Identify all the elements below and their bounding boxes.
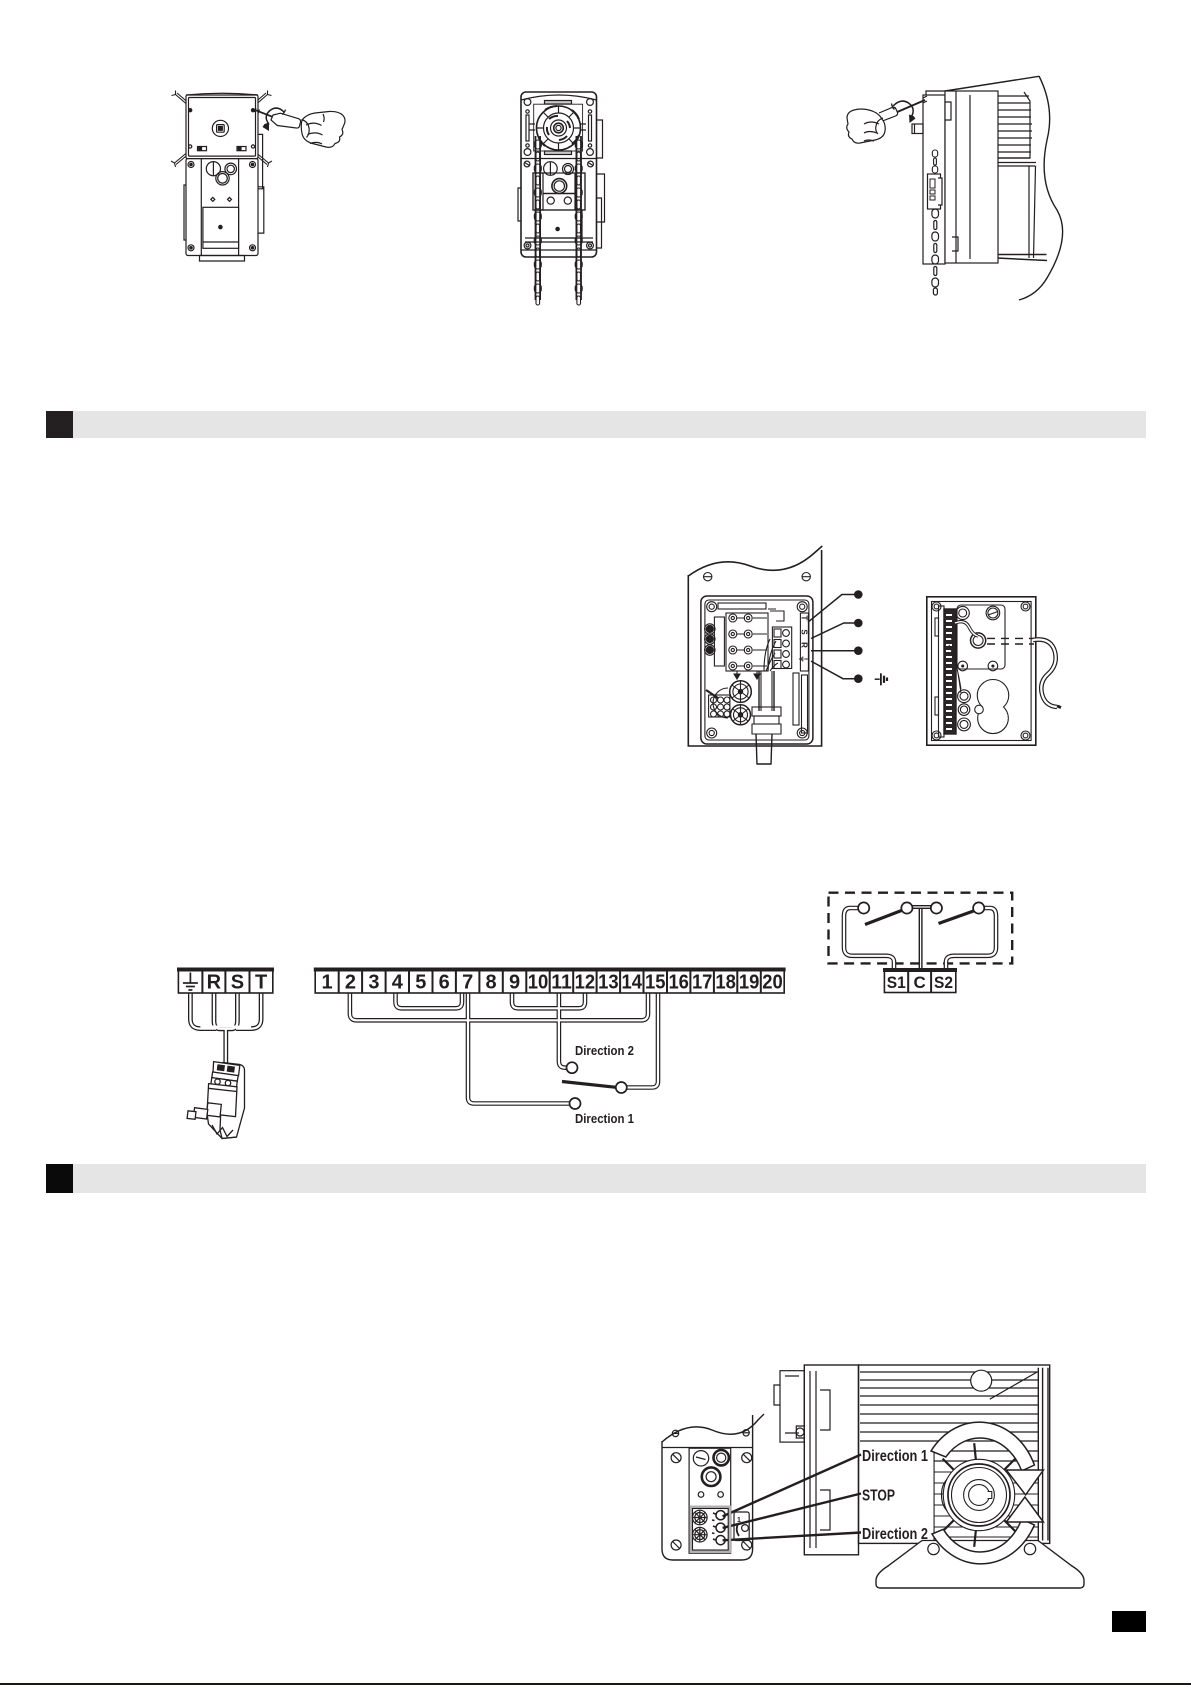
svg-text:T: T: [255, 972, 267, 994]
svg-text:10: 10: [528, 972, 549, 994]
svg-text:1: 1: [321, 972, 332, 994]
svg-text:C: C: [913, 973, 925, 992]
svg-text:8: 8: [486, 972, 497, 994]
svg-text:7: 7: [462, 972, 473, 994]
svg-text:T: T: [799, 616, 808, 621]
svg-text:15: 15: [645, 972, 666, 994]
svg-text:R: R: [207, 972, 222, 994]
svg-text:S1: S1: [887, 973, 906, 992]
svg-text:20: 20: [762, 972, 783, 994]
svg-text:6: 6: [439, 972, 450, 994]
svg-text:1: 1: [737, 1517, 741, 1524]
svg-text:11: 11: [551, 972, 572, 994]
svg-text:9: 9: [509, 972, 520, 994]
svg-text:16: 16: [668, 972, 689, 994]
svg-text:S: S: [231, 972, 244, 994]
svg-text:Direction 1: Direction 1: [862, 1448, 928, 1465]
svg-text:18: 18: [715, 972, 736, 994]
svg-text:5: 5: [415, 972, 426, 994]
svg-text:STOP: STOP: [862, 1488, 895, 1505]
svg-text:19: 19: [739, 972, 760, 994]
svg-text:R: R: [799, 642, 808, 648]
svg-text:14: 14: [622, 972, 643, 994]
svg-text:17: 17: [692, 972, 713, 994]
svg-text:S2: S2: [934, 973, 953, 992]
svg-text:4: 4: [392, 972, 404, 994]
svg-text:12: 12: [575, 972, 596, 994]
svg-text:2: 2: [345, 972, 356, 994]
svg-text:Direction 2: Direction 2: [575, 1043, 634, 1058]
svg-text:Direction 1: Direction 1: [575, 1111, 634, 1126]
svg-text:3: 3: [368, 972, 379, 994]
svg-text:13: 13: [598, 972, 619, 994]
svg-text:Direction 2: Direction 2: [862, 1526, 928, 1543]
svg-text:S: S: [799, 629, 808, 635]
